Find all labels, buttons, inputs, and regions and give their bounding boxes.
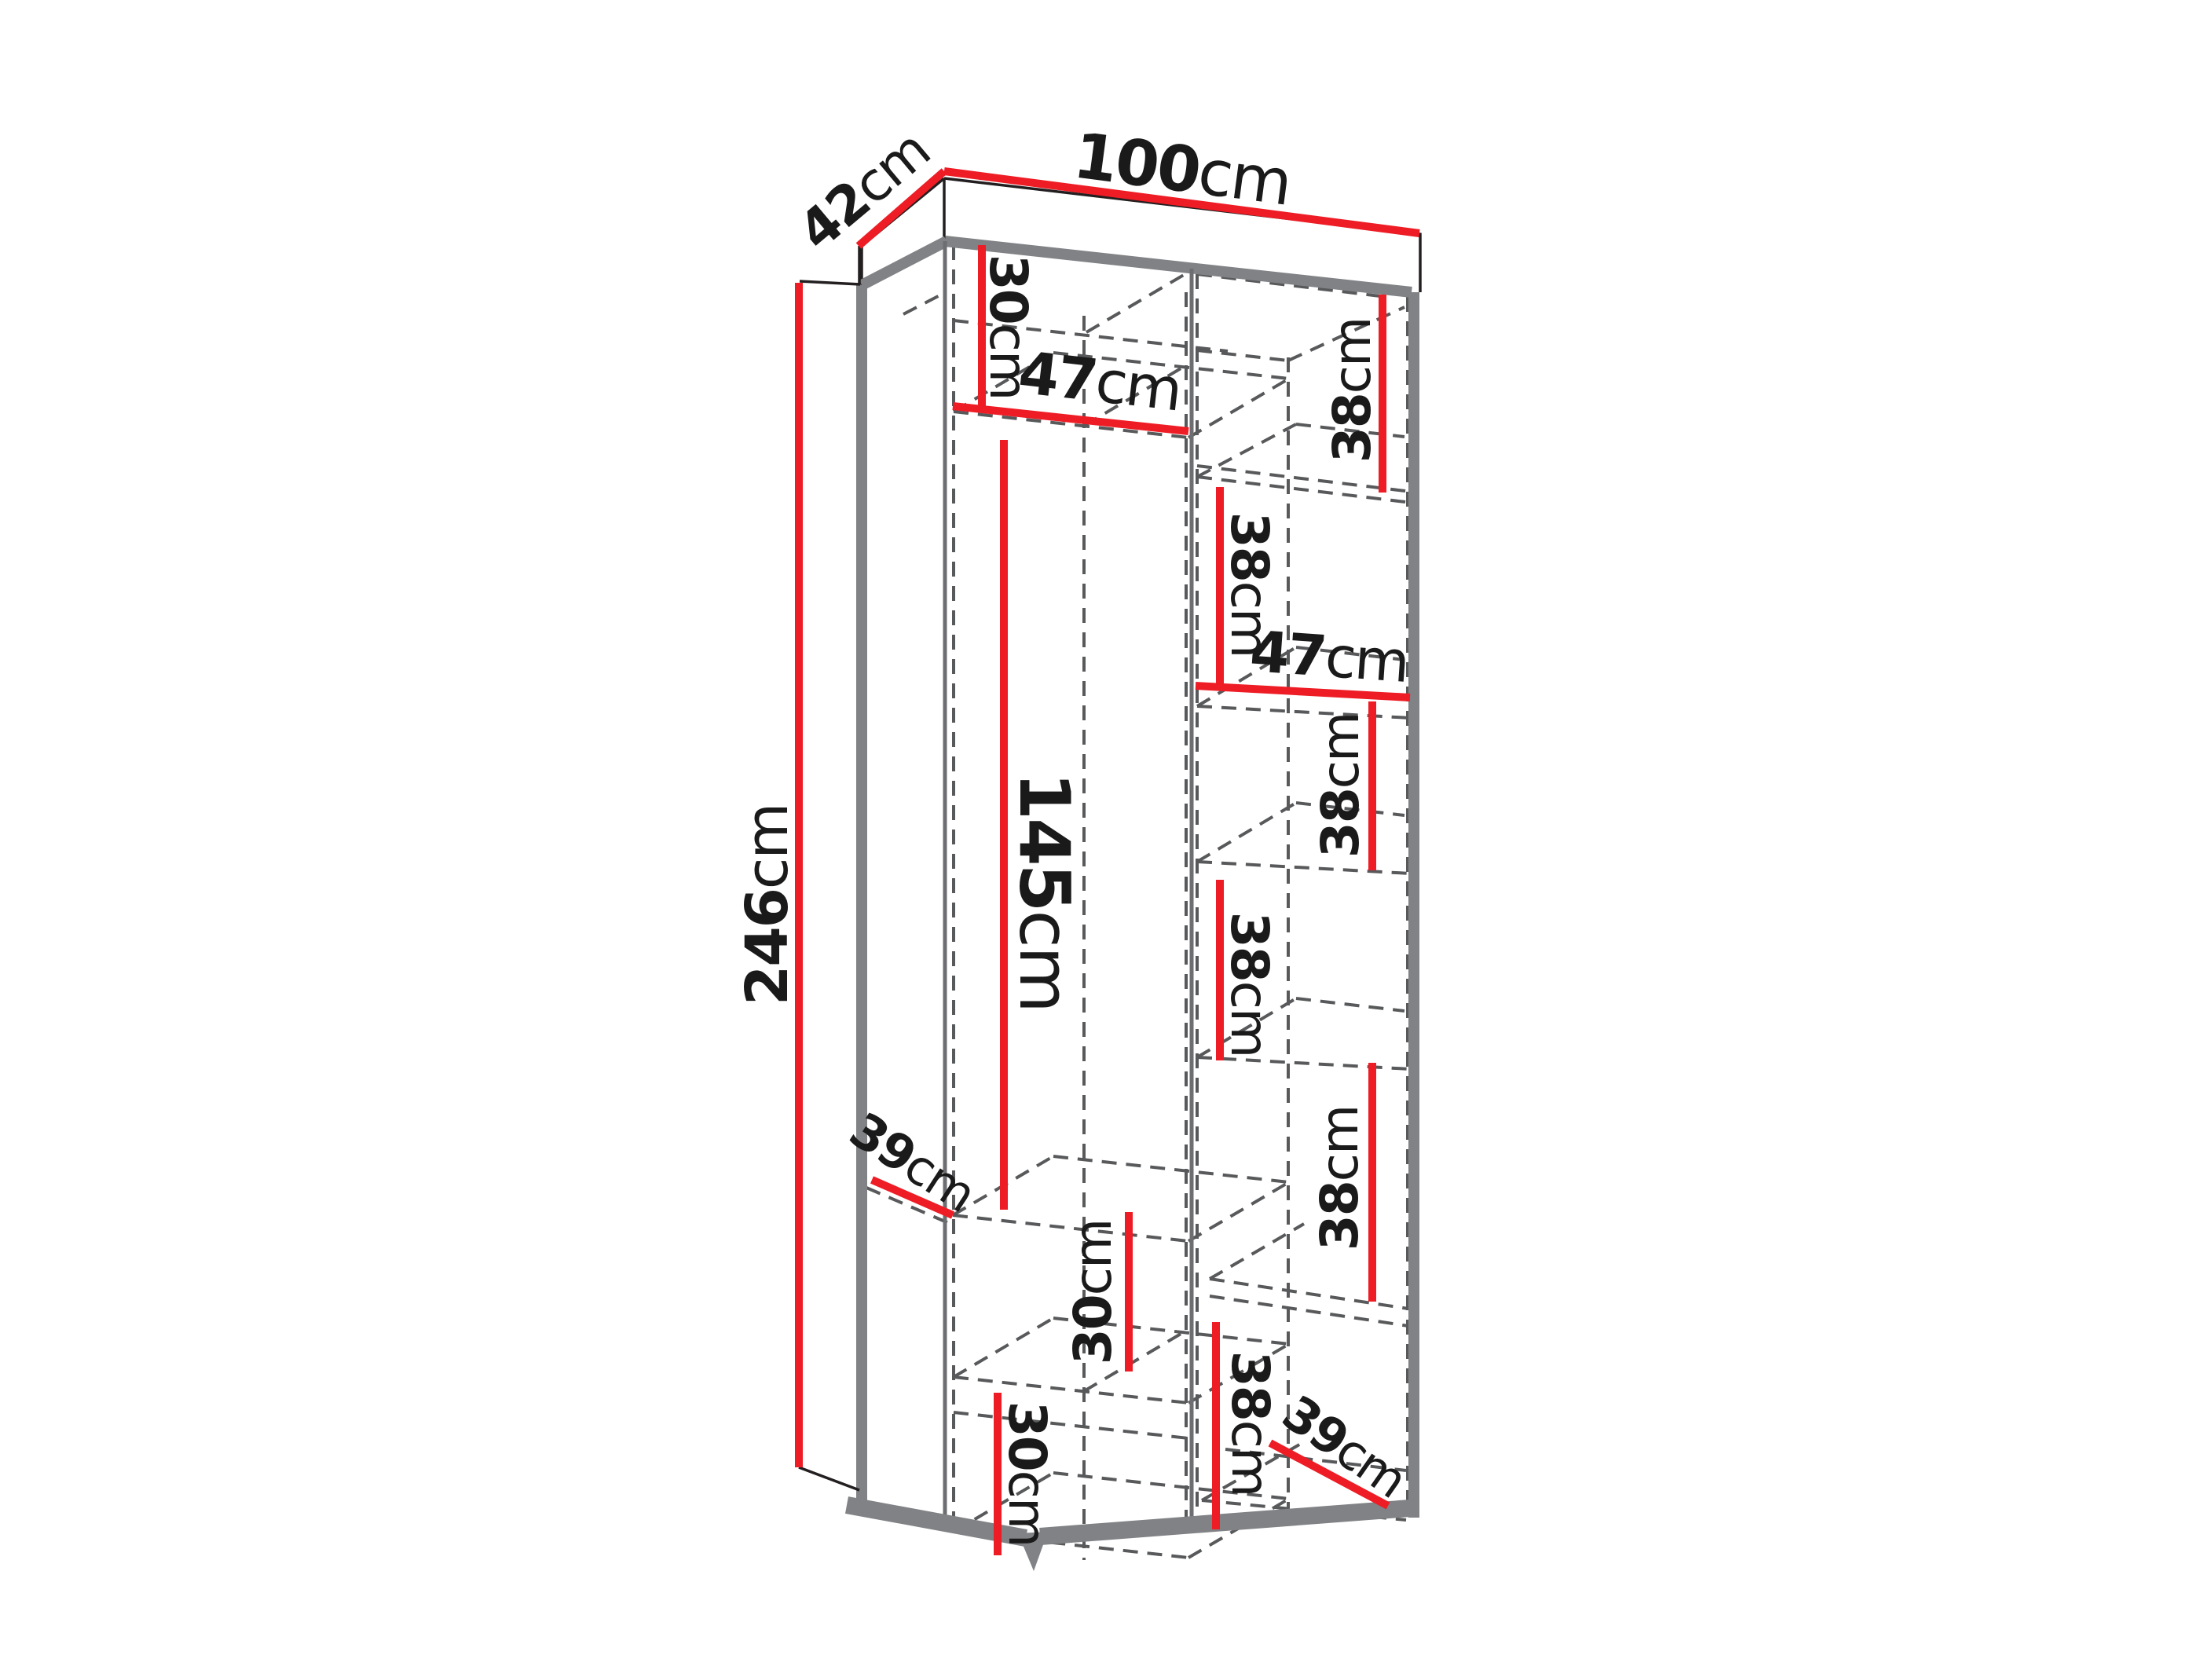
label-middle-cell: 30cm <box>1063 1220 1123 1365</box>
wardrobe-dimension-diagram: 42cm 100cm 246cm 30cm 47cm 38cm 38cm 47c… <box>0 0 2212 1659</box>
label-bottom-left-cell: 30cm <box>998 1401 1058 1547</box>
label-height: 246cm <box>734 804 801 1005</box>
diagram-canvas: 42cm 100cm 246cm 30cm 47cm 38cm 38cm 47c… <box>0 0 2212 1659</box>
shelf-edge <box>1197 862 1410 873</box>
shelf-edge <box>1197 706 1410 718</box>
height-tick-bottom <box>799 1467 859 1490</box>
hidden-edge <box>1197 350 1288 361</box>
shelf-edge <box>1210 1279 1408 1309</box>
label-width: 100cm <box>1070 119 1295 219</box>
shelf-edge <box>1210 1296 1408 1326</box>
label-right-cell-1: 38cm <box>1322 318 1382 463</box>
label-right-cell-5: 38cm <box>1309 1106 1370 1251</box>
label-right-section-width: 47cm <box>1248 618 1411 695</box>
shelf-edge <box>1053 1156 1289 1182</box>
label-bottom-right-cell: 38cm <box>1221 1351 1281 1496</box>
label-hanging-section: 145cm <box>1005 772 1086 1012</box>
label-right-cell-4: 38cm <box>1220 912 1280 1057</box>
shelf-edge <box>1197 803 1296 862</box>
shelf-edge <box>1197 1057 1410 1069</box>
label-right-cell-3: 38cm <box>1310 713 1371 859</box>
shelf-edge <box>1188 1182 1289 1241</box>
hidden-edge <box>903 292 946 314</box>
bottom-panel-edge <box>1040 1508 1410 1536</box>
shelf-edge <box>954 1318 1053 1377</box>
shelf-edge <box>954 1377 1188 1403</box>
shelf-edge <box>1188 379 1289 438</box>
shelf-edge <box>1197 424 1296 477</box>
shelf-edge <box>1296 998 1404 1011</box>
shelf-edge <box>954 1412 1188 1438</box>
side-panel-top-edge <box>862 241 947 285</box>
hidden-edge <box>1086 273 1188 332</box>
